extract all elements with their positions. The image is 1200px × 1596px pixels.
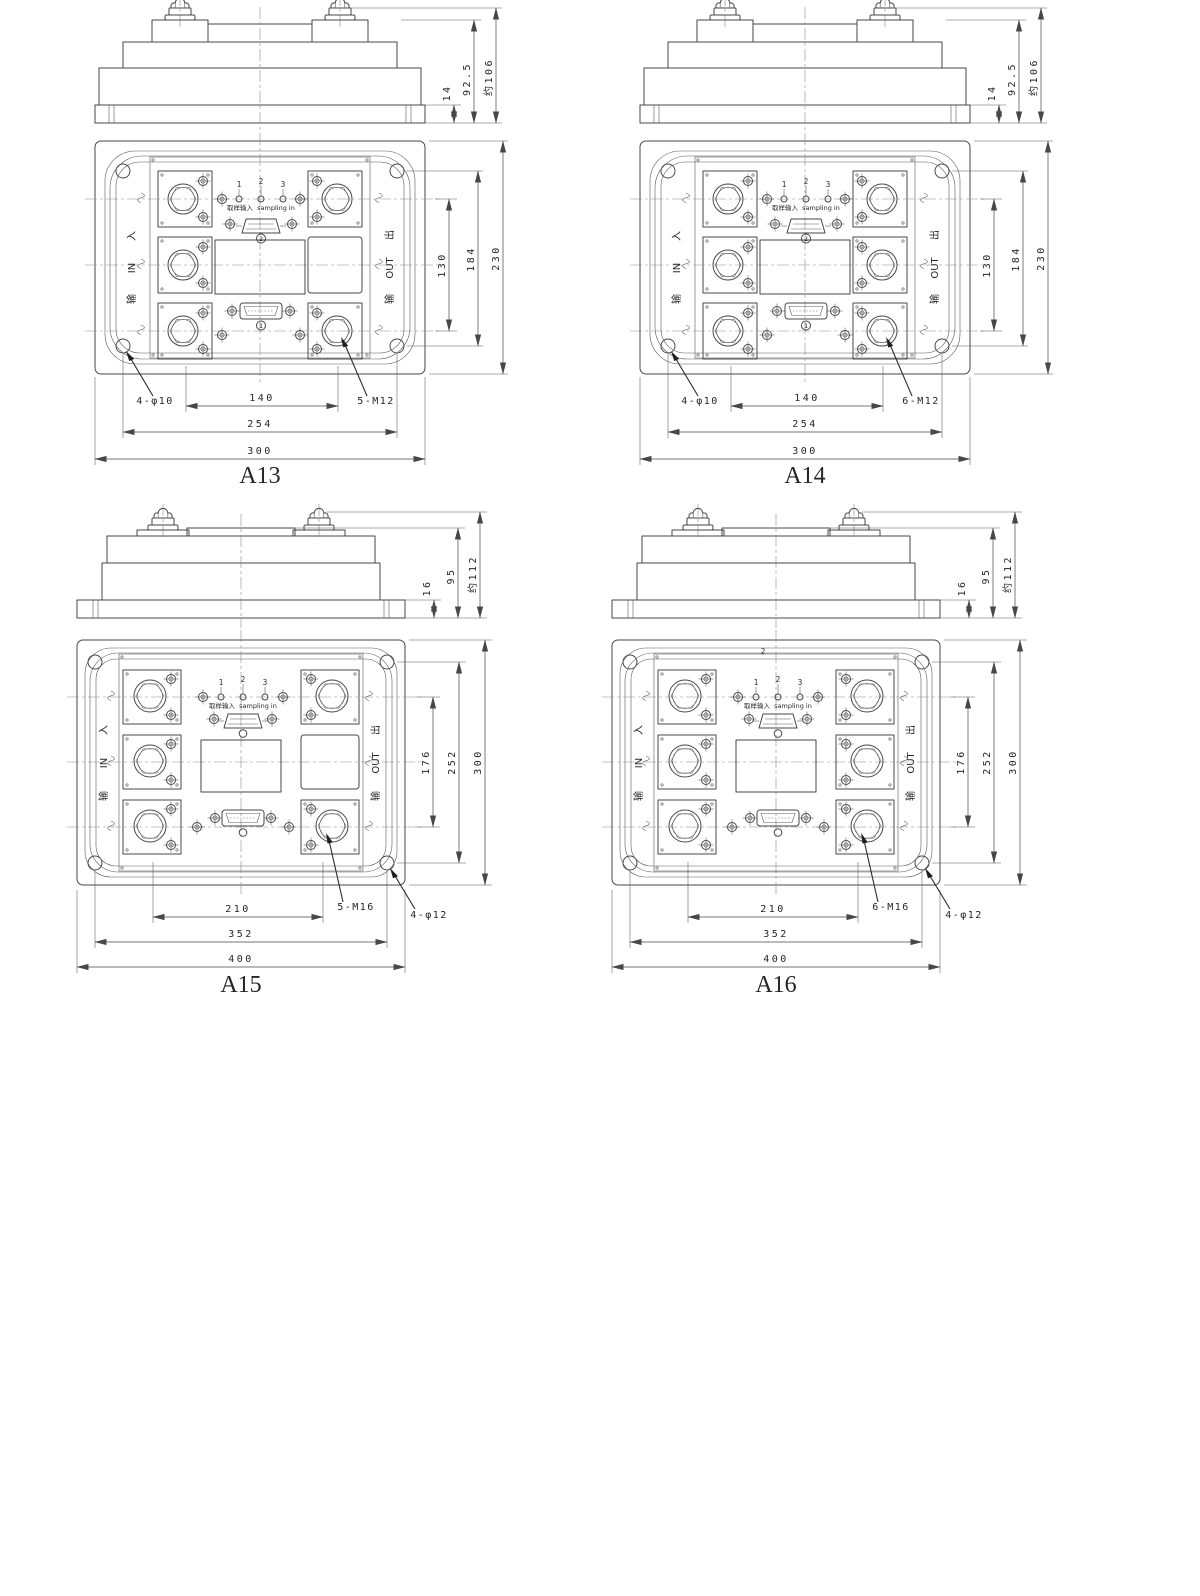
plan-view bbox=[67, 630, 422, 895]
connector-num-top: 2 bbox=[259, 235, 263, 243]
drawing-a14: 14 92.5 约106 130 184 230 140 254 300 4-φ… bbox=[630, 0, 1053, 489]
sampling-label-en: sampling in bbox=[774, 702, 812, 710]
dim-total-height: 约106 bbox=[1027, 58, 1040, 96]
plan-dimensions bbox=[95, 141, 508, 465]
drawing-title: A13 bbox=[239, 463, 280, 489]
dim-base-thickness: 14 bbox=[987, 84, 998, 101]
dim-h-inner: 210 bbox=[225, 904, 251, 915]
pin-label-3: 3 bbox=[263, 678, 268, 687]
label-mount-holes: 4-φ12 bbox=[410, 910, 448, 921]
drawing-title: A14 bbox=[784, 463, 825, 489]
dim-v-overall: 230 bbox=[491, 245, 502, 271]
side-dimensions bbox=[295, 512, 487, 618]
sampling-label-cn: 取样输入 bbox=[772, 203, 799, 212]
dim-h-holes: 254 bbox=[792, 419, 818, 430]
pin-label-3: 3 bbox=[826, 180, 831, 189]
label-mount-holes: 4-φ10 bbox=[136, 396, 174, 407]
side-dimensions bbox=[830, 512, 1022, 618]
pin-label-2: 2 bbox=[804, 177, 809, 186]
dim-h-holes: 352 bbox=[228, 929, 254, 940]
input-cn-word: 输 bbox=[125, 294, 138, 304]
dim-v-holes: 184 bbox=[1011, 246, 1022, 272]
output-cn-word: 输 bbox=[369, 791, 382, 801]
output-cn-char: 出 bbox=[928, 230, 941, 240]
drawing-a15: 16 95 约112 176 252 300 210 352 400 5-M16… bbox=[67, 504, 492, 998]
input-cn-char: 入 bbox=[634, 725, 645, 735]
dim-body-height: 92.5 bbox=[1007, 62, 1018, 96]
dim-v-overall: 300 bbox=[1008, 749, 1019, 775]
sampling-label-cn: 取样输入 bbox=[227, 203, 254, 212]
output-en: OUT bbox=[930, 256, 941, 278]
pin-label-1: 1 bbox=[754, 678, 759, 687]
sampling-label-en: sampling in bbox=[239, 702, 277, 710]
dim-base-thickness: 14 bbox=[442, 84, 453, 101]
dim-body-height: 95 bbox=[446, 567, 457, 584]
output-cn-char: 出 bbox=[383, 230, 396, 240]
dim-h-holes: 352 bbox=[763, 929, 789, 940]
pin-label-1: 1 bbox=[219, 678, 224, 687]
dim-h-inner: 140 bbox=[249, 393, 275, 404]
output-cn-char: 出 bbox=[369, 725, 382, 735]
output-en: OUT bbox=[906, 751, 917, 773]
side-view bbox=[640, 0, 970, 131]
output-cn-word: 输 bbox=[383, 294, 396, 304]
dim-v-overall: 300 bbox=[473, 749, 484, 775]
dim-v-holes: 184 bbox=[466, 246, 477, 272]
dim-v-overall: 230 bbox=[1036, 245, 1047, 271]
pin-label-1: 1 bbox=[782, 180, 787, 189]
input-cn-char: 入 bbox=[672, 231, 683, 241]
drawing-a16: 16 95 约112 176 252 300 210 352 400 6-M16… bbox=[602, 504, 1027, 998]
connector-num-top: 2 bbox=[804, 235, 808, 243]
output-cn-word: 输 bbox=[928, 294, 941, 304]
output-cn-char: 出 bbox=[904, 725, 917, 735]
dim-v-inner: 176 bbox=[421, 749, 432, 775]
input-cn-char: 入 bbox=[127, 231, 138, 241]
extra-num: 2 bbox=[761, 647, 766, 656]
dim-v-holes: 252 bbox=[447, 749, 458, 775]
label-terminals: 5-M12 bbox=[357, 396, 395, 407]
input-cn-char: 入 bbox=[99, 725, 110, 735]
label-mount-holes: 4-φ10 bbox=[681, 396, 719, 407]
connector-num-bottom: 1 bbox=[804, 322, 808, 330]
drawing-title: A16 bbox=[755, 972, 796, 998]
dim-total-height: 约112 bbox=[466, 555, 479, 593]
dim-total-height: 约106 bbox=[482, 58, 495, 96]
dim-body-height: 92.5 bbox=[462, 62, 473, 96]
pin-label-3: 3 bbox=[281, 180, 286, 189]
plan-dimensions bbox=[640, 141, 1053, 465]
pin-label-1: 1 bbox=[237, 180, 242, 189]
sampling-label-cn: 取样输入 bbox=[744, 701, 771, 710]
pin-label-2: 2 bbox=[241, 675, 246, 684]
input-cn-word: 输 bbox=[97, 791, 110, 801]
input-en: IN bbox=[672, 263, 683, 273]
label-terminals: 5-M16 bbox=[337, 902, 375, 913]
dim-v-holes: 252 bbox=[982, 749, 993, 775]
drawing-a13: 14 92.5 约106 130 184 230 140 254 300 4-φ… bbox=[85, 0, 508, 489]
dim-h-overall: 400 bbox=[763, 954, 789, 965]
input-en: IN bbox=[634, 758, 645, 768]
drawing-title: A15 bbox=[220, 972, 261, 998]
dim-body-height: 95 bbox=[981, 567, 992, 584]
input-cn-word: 输 bbox=[632, 791, 645, 801]
drawing-sheet: 14 92.5 约106 130 184 230 140 254 300 4-φ… bbox=[0, 0, 1200, 1596]
sampling-label-en: sampling in bbox=[257, 204, 295, 212]
pin-label-2: 2 bbox=[259, 177, 264, 186]
dim-h-overall: 300 bbox=[792, 446, 818, 457]
dim-v-inner: 130 bbox=[982, 252, 993, 278]
output-en: OUT bbox=[385, 256, 396, 278]
drawing-svg: 14 92.5 约106 130 184 230 140 254 300 4-φ… bbox=[0, 0, 1200, 1596]
label-terminals: 6-M12 bbox=[902, 396, 940, 407]
input-cn-word: 输 bbox=[670, 294, 683, 304]
sampling-label-en: sampling in bbox=[802, 204, 840, 212]
dim-total-height: 约112 bbox=[1001, 555, 1014, 593]
dim-h-overall: 300 bbox=[247, 446, 273, 457]
output-cn-word: 输 bbox=[904, 791, 917, 801]
input-en: IN bbox=[127, 263, 138, 273]
side-view bbox=[77, 504, 405, 628]
plan-view bbox=[602, 630, 957, 895]
dim-v-inner: 130 bbox=[437, 252, 448, 278]
dim-h-overall: 400 bbox=[228, 954, 254, 965]
sampling-label-cn: 取样输入 bbox=[209, 701, 236, 710]
dim-base-thickness: 16 bbox=[957, 579, 968, 596]
input-en: IN bbox=[99, 758, 110, 768]
dim-h-inner: 210 bbox=[760, 904, 786, 915]
label-mount-holes: 4-φ12 bbox=[945, 910, 983, 921]
side-view bbox=[95, 0, 425, 131]
connector-num-bottom: 1 bbox=[259, 322, 263, 330]
dim-h-holes: 254 bbox=[247, 419, 273, 430]
label-terminals: 6-M16 bbox=[872, 902, 910, 913]
dim-h-inner: 140 bbox=[794, 393, 820, 404]
side-view bbox=[612, 504, 940, 628]
output-en: OUT bbox=[371, 751, 382, 773]
pin-label-2: 2 bbox=[776, 675, 781, 684]
dim-v-inner: 176 bbox=[956, 749, 967, 775]
dim-base-thickness: 16 bbox=[422, 579, 433, 596]
pin-label-3: 3 bbox=[798, 678, 803, 687]
